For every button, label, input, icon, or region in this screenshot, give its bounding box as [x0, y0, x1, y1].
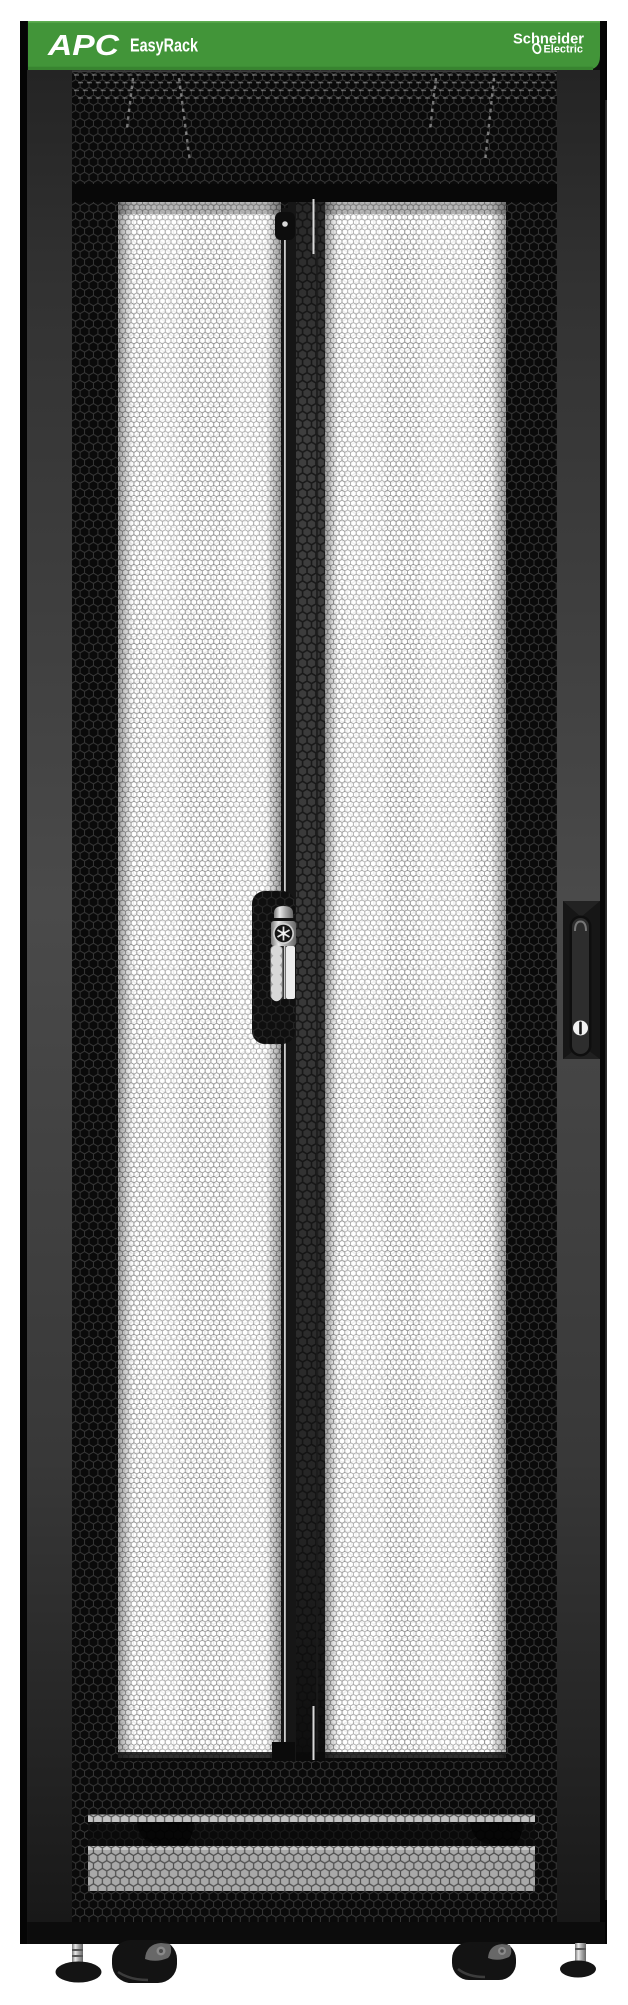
svg-text:APC: APC	[47, 30, 120, 62]
svg-text:Electric: Electric	[544, 44, 584, 56]
svg-text:EasyRack: EasyRack	[130, 36, 199, 56]
